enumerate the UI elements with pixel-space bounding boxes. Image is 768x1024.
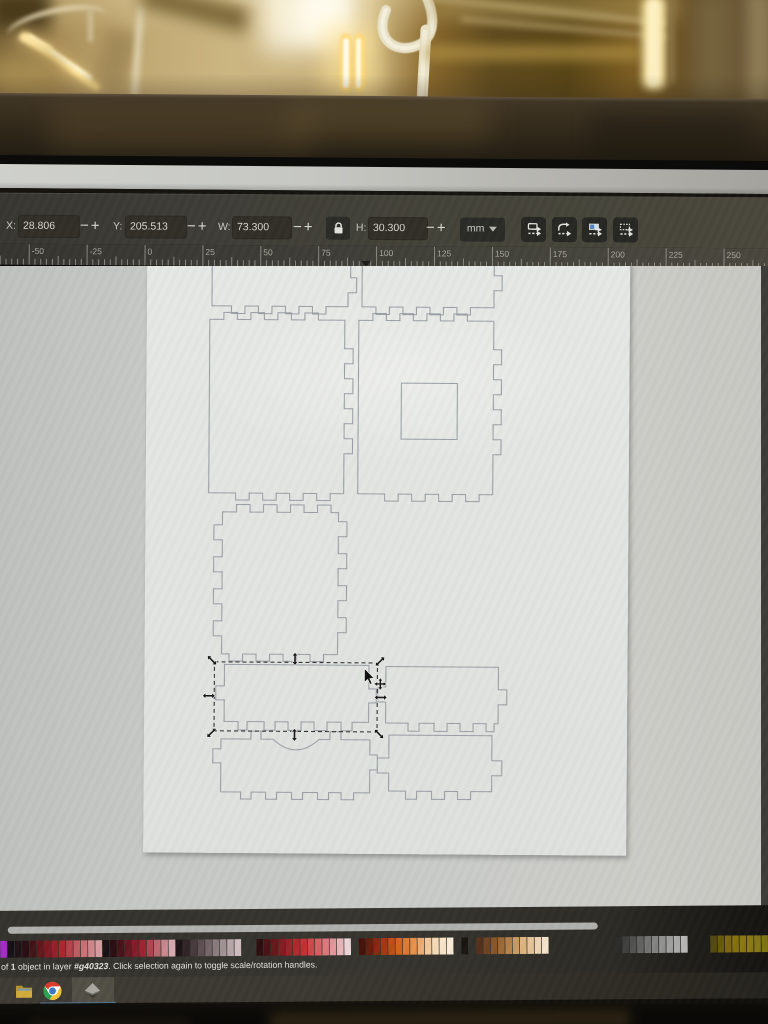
svg-text:250: 250 — [726, 250, 741, 260]
svg-text:25: 25 — [205, 247, 215, 257]
svg-text:225: 225 — [669, 250, 684, 260]
svg-text:125: 125 — [437, 248, 452, 258]
svg-text:100: 100 — [379, 248, 394, 258]
svg-text:200: 200 — [611, 249, 626, 259]
svg-text:175: 175 — [553, 249, 568, 259]
svg-text:150: 150 — [495, 249, 510, 259]
svg-text:-50: -50 — [32, 246, 45, 256]
svg-text:50: 50 — [263, 247, 273, 257]
svg-text:0: 0 — [147, 247, 152, 257]
svg-text:75: 75 — [321, 248, 331, 258]
svg-text:-25: -25 — [90, 246, 103, 256]
